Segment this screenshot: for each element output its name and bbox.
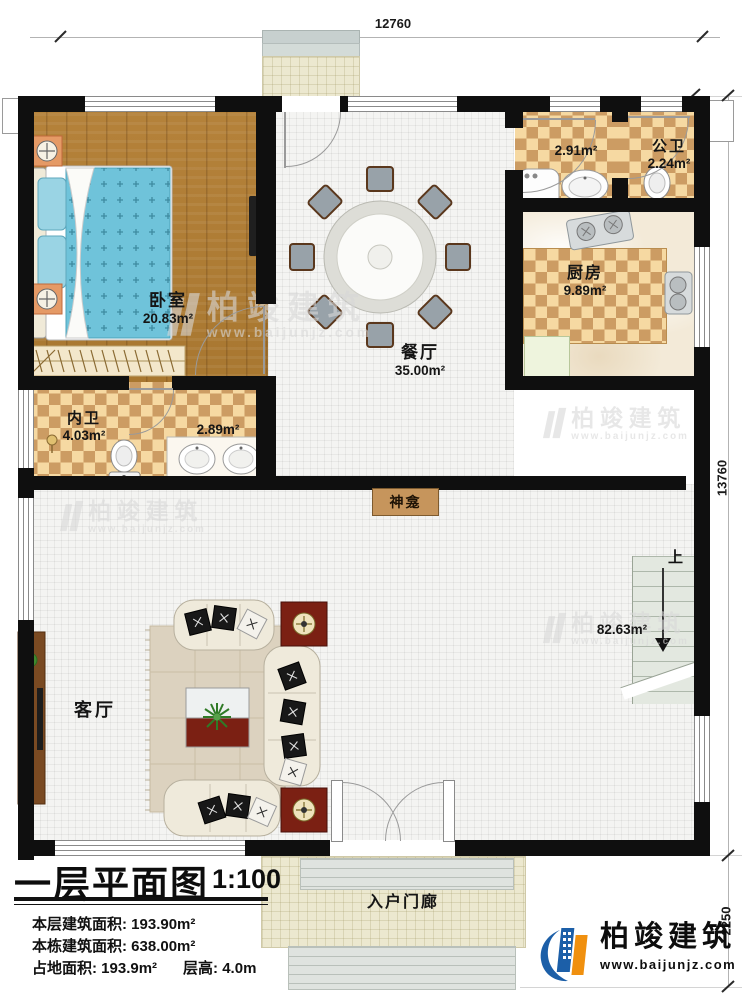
brand-logo: 柏竣建筑 www.baijunjz.com [538,922,736,984]
wall [505,112,523,128]
watermark: 柏竣建筑 www.baijunjz.com [62,500,206,535]
wall [523,198,694,212]
wall [505,376,694,390]
entry-steps-lower [288,946,516,990]
extension-line [710,855,742,856]
brand-url: www.baijunjz.com [600,957,736,972]
room-label-kitchen: 厨房 9.89m² [564,264,607,299]
brand-name: 柏竣建筑 [600,922,736,954]
floor-plan-canvas: 12760 13760 2250 [0,0,750,993]
dimension-top: 12760 [371,16,415,31]
plan-scale: 1:100 [212,864,281,895]
entry-steps-upper [300,858,514,890]
extension-line [710,96,742,97]
window [694,716,710,802]
extension-line [520,987,742,988]
room-label-living: 客厅 [74,700,116,722]
title-rule [14,904,268,905]
window [18,390,34,468]
room-label-entry-porch: 入户门廊 [367,893,439,912]
wall [172,376,256,390]
wall [256,376,276,476]
wall [34,376,129,390]
stat-footprint-height: 占地面积: 193.9m²层高: 4.0m [32,957,256,978]
dimension-right: 13760 [715,460,730,496]
door-opening [282,96,340,112]
room-label-public-bath: 公卫 2.24m² [648,138,691,172]
stat-floor-area: 本层建筑面积: 193.90m² [32,913,195,934]
stairs-up-label: 上 [668,546,683,567]
window [694,247,710,347]
brand-logo-icon [538,922,592,984]
entry-door-opening [330,840,455,856]
watermark-logo-icon [545,408,566,441]
room-label-vanity: 2.89m² [197,422,240,438]
shrine-box: 神龛 [372,488,439,516]
room-label-master-bath: 内卫 4.03m² [63,410,106,444]
shrine-label: 神龛 [390,492,422,512]
watermark: 柏竣建筑 www.baijunjz.com [545,407,689,442]
window [550,96,600,112]
watermark-logo-icon [62,501,83,534]
wall [256,96,276,304]
wall [18,476,686,490]
room-label-bedroom: 卧室 20.83m² [143,291,193,328]
entry-door-panel [443,780,455,842]
stat-building-area: 本栋建筑面积: 638.00m² [32,935,195,956]
room-label-dining: 餐厅 35.00m² [395,343,445,380]
title-rule [14,897,268,901]
room-label-laundry: 2.91m² [555,143,598,159]
top-dimension-line [30,37,720,38]
wall [612,178,628,212]
fridge [524,336,570,378]
window [85,96,215,112]
watermark-logo-icon [545,613,566,646]
window [18,498,34,620]
window [641,96,682,112]
wall [505,170,523,390]
room-label-living-area: 82.63m² [597,622,647,638]
wall [612,112,628,122]
window [348,96,457,112]
